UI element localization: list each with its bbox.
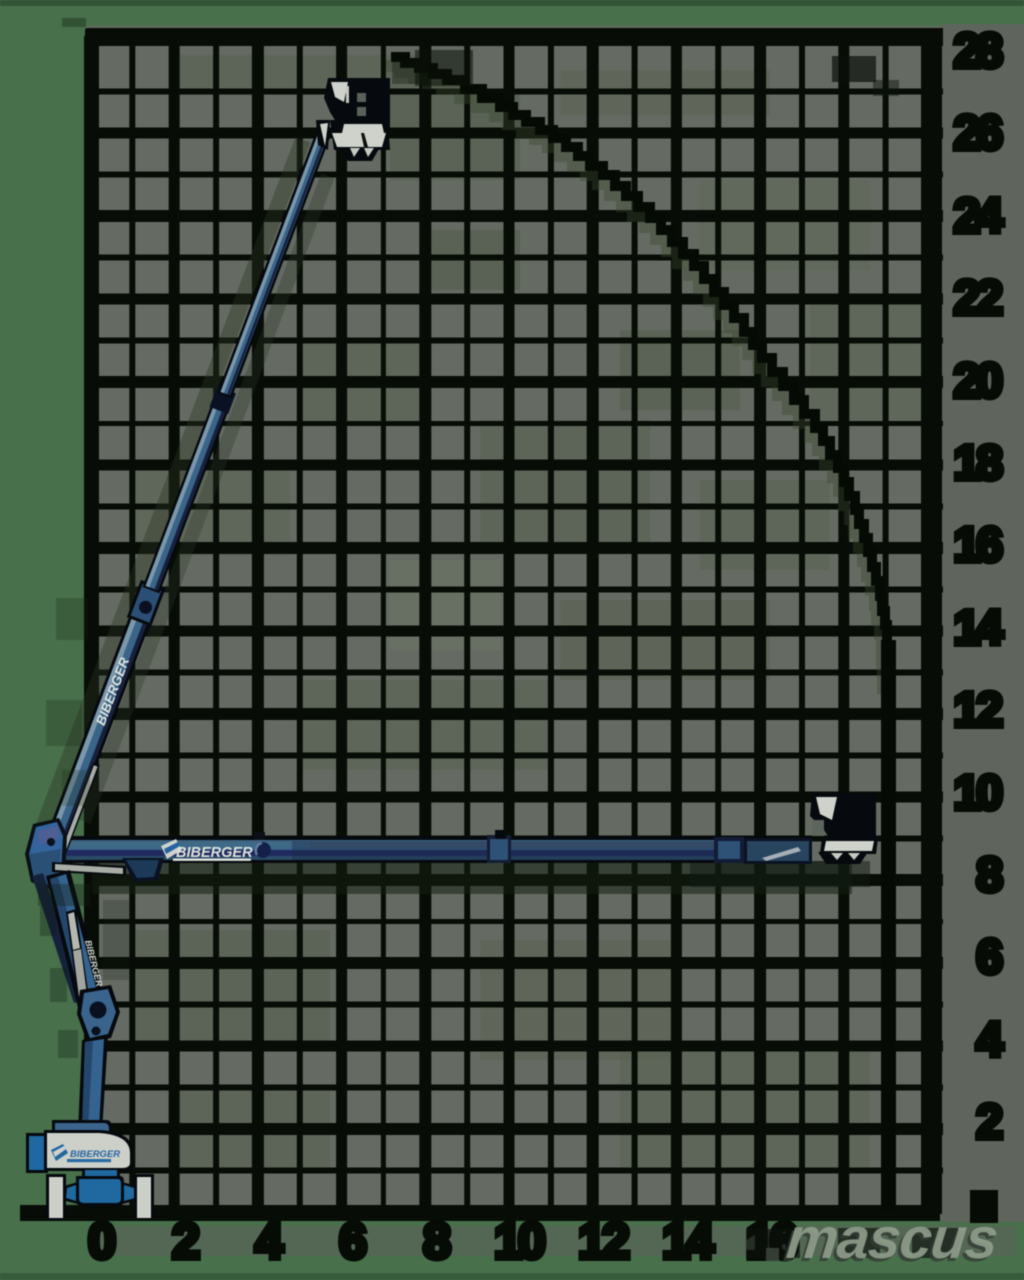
svg-text:12: 12 xyxy=(578,1213,628,1269)
svg-text:12: 12 xyxy=(954,684,1002,737)
svg-text:4: 4 xyxy=(255,1213,283,1269)
svg-text:2: 2 xyxy=(976,1096,1001,1149)
svg-text:22: 22 xyxy=(954,272,1002,325)
svg-text:28: 28 xyxy=(954,25,1003,78)
svg-text:0: 0 xyxy=(88,1213,114,1269)
svg-text:6: 6 xyxy=(976,931,1001,984)
svg-text:8: 8 xyxy=(423,1213,450,1269)
svg-text:mascus: mascus xyxy=(784,1206,1001,1271)
svg-text:18: 18 xyxy=(954,437,1003,490)
svg-text:8: 8 xyxy=(976,849,1002,902)
svg-text:14: 14 xyxy=(662,1213,714,1269)
svg-text:14: 14 xyxy=(954,602,1004,655)
svg-text:24: 24 xyxy=(954,190,1004,243)
svg-text:16: 16 xyxy=(954,519,1002,572)
svg-text:26: 26 xyxy=(954,107,1002,160)
svg-text:6: 6 xyxy=(339,1213,365,1269)
svg-text:2: 2 xyxy=(172,1213,198,1269)
svg-text:10: 10 xyxy=(954,767,1002,820)
svg-text:20: 20 xyxy=(954,355,1002,408)
svg-text:BIBERGER: BIBERGER xyxy=(70,1149,120,1160)
svg-text:10: 10 xyxy=(494,1213,544,1269)
